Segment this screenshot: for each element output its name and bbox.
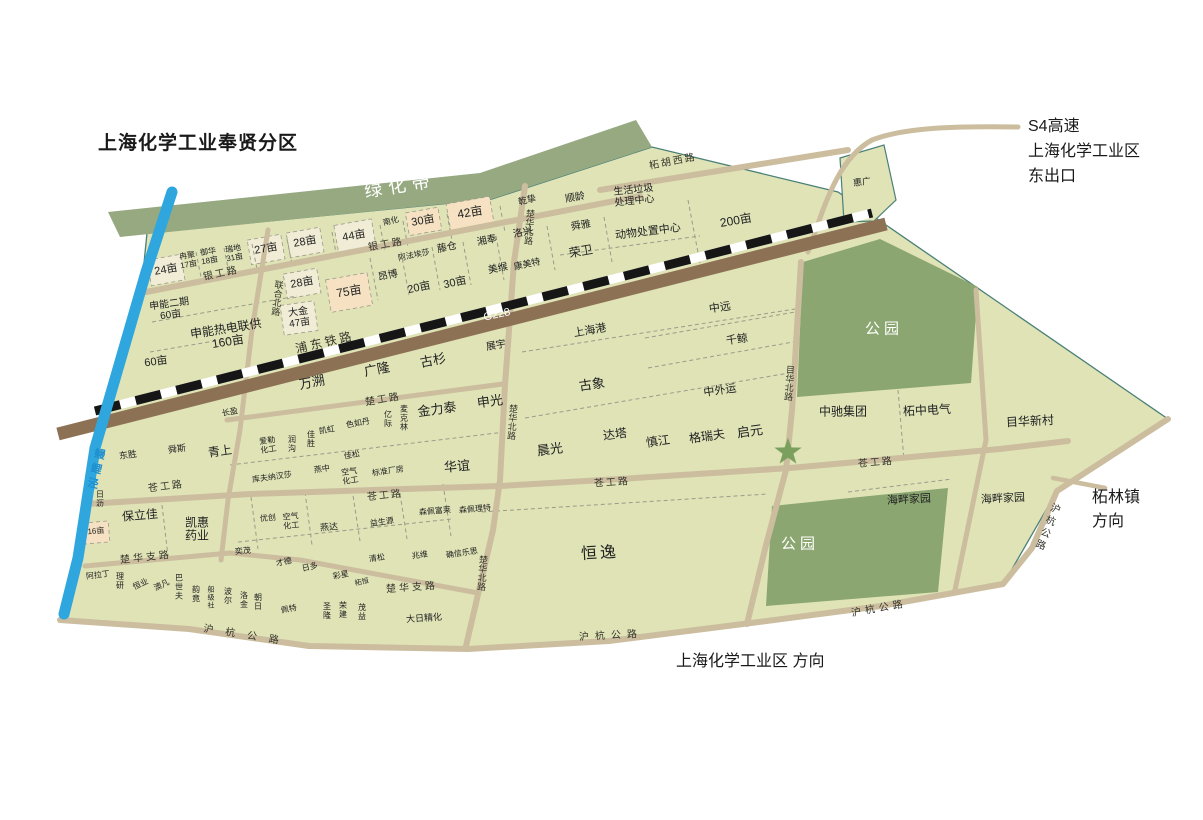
parcel-hengye: 恒业: [132, 578, 150, 593]
road-canggong-3: 苍工路: [594, 476, 631, 490]
parcel-luojin: 洛 金: [240, 592, 248, 610]
parcel-maoyi: 茂 益: [358, 604, 366, 622]
parcel-changying: 长盈: [221, 407, 238, 419]
road-canggong-4: 苍工路: [858, 456, 895, 470]
parcel-rongwei: 荣卫: [568, 243, 594, 260]
road-zhehuxi: 柘胡西路: [648, 152, 697, 172]
parcel-shunya: 舜雅: [570, 219, 592, 233]
parcel-shenjiang: 慎江: [645, 434, 671, 451]
parcel-jiasong: 佳松: [343, 450, 360, 462]
parcel-haipan-2: 海畔家园: [981, 492, 1026, 507]
parcel-caide: 才德: [275, 557, 293, 569]
parcel-rungou: 润 沟: [288, 436, 296, 454]
parcel-caixing: 彩星: [332, 570, 350, 582]
parcel-42mu: 42亩: [456, 204, 483, 222]
parcel-28mu-b: 28亩: [289, 275, 314, 291]
parcel-gushan: 古杉: [419, 351, 447, 370]
parcel-nanhua: 南化: [382, 216, 400, 229]
parcel-kongqi-2: 空气 化工: [282, 512, 299, 531]
parcel-chenguang: 晨光: [536, 441, 564, 459]
parcel-qianzhi: 乾挚: [517, 193, 537, 207]
parcel-60mu: 60亩: [144, 354, 169, 369]
parcel-75mu: 75亩: [335, 283, 362, 301]
parcel-zhaowei: 兆维: [411, 550, 428, 561]
road-chugong: 楚工路: [364, 391, 401, 408]
parcel-muhuaxincun: 目华新村: [1006, 414, 1055, 430]
facility-animal-center: 动物处置中心: [614, 222, 681, 242]
road-canggong-2: 苍工路: [367, 489, 404, 504]
parcel-guanglong: 广隆: [363, 360, 391, 379]
parcel-yanda: 燕达: [320, 521, 339, 533]
parcel-guxiang: 古象: [578, 376, 606, 394]
parcel-30mu-a: 30亩: [410, 213, 435, 229]
parcel-boer: 波 尔: [224, 588, 232, 606]
park-label-1: 公园: [865, 322, 903, 339]
parcel-kaihong: 凯虹: [318, 425, 335, 437]
road-chuhuabei-m: 楚华北路: [506, 404, 519, 441]
parcel-24mu: 24亩: [153, 262, 178, 278]
parcel-angbo: 昂博: [377, 268, 399, 283]
parcel-ranju-17mu: 冉聚 17亩: [178, 251, 198, 272]
parcel-28mu-a: 28亩: [292, 234, 317, 250]
road-yingong-b: 银工路: [367, 236, 404, 253]
road-canggong-1: 苍工路: [147, 479, 184, 494]
parcel-ailehuagong: 爱勒 化工: [259, 436, 277, 456]
parcel-bashifu: 巴 世 夫: [175, 575, 183, 602]
parcel-darijinghua: 大日精化: [406, 612, 443, 625]
parcel-kaihui: 凯惠 药业: [185, 517, 209, 544]
parcel-yuhua-18mu: 御华 18亩: [199, 247, 219, 268]
parcel-quexinlesi: 确信乐思: [446, 547, 479, 560]
parcel-dongsheng: 东胜: [118, 449, 137, 461]
parcel-jinlitai: 金力泰: [417, 400, 458, 420]
parcel-huiguang: 惠广: [852, 176, 871, 188]
parcel-baolijia: 保立佳: [121, 508, 158, 525]
parcel-30mu-b: 30亩: [442, 275, 467, 292]
parcel-shenneng2-60mu: 申能二期 60亩: [149, 296, 192, 324]
parcel-zhongchi: 中驰集团: [819, 405, 867, 418]
parcel-jiasheng: 佳 胜: [307, 431, 315, 449]
zhelin-direction-note: 柘林镇 方向: [1092, 486, 1140, 534]
parcel-xiangfeng: 湘奉: [476, 233, 498, 248]
parcel-wansu: 万溯: [298, 373, 326, 392]
parcel-tengcang: 藤仓: [436, 240, 458, 255]
parcel-biaozhun: 标准厂房: [372, 465, 405, 478]
parcel-yunjing: 韵 竟: [192, 586, 200, 604]
road-chuhuabei-s: 楚华北路: [476, 555, 489, 592]
parcel-rili: 日 沥: [96, 491, 104, 509]
parcel-afaaisha: 阿法埃莎: [397, 248, 430, 263]
parcel-peite: 佩特: [280, 604, 297, 616]
parcel-aladin: 阿拉丁: [85, 570, 110, 582]
road-huhang-2: 沪杭公路: [579, 629, 643, 644]
parcel-meigou: 美缑: [487, 261, 509, 276]
parcel-yimao: 奕茂: [235, 547, 252, 557]
parcel-zhongwaiyun: 中外运: [703, 383, 737, 400]
parcel-qiyuan: 启元: [736, 423, 764, 441]
road-chuhuazhi-2: 楚华支路: [386, 581, 439, 596]
parcel-liyan: 理 研: [116, 573, 124, 591]
parcel-shenglong: 圣 隆: [323, 603, 331, 621]
parcel-kufuna: 库夫纳汉莎: [252, 471, 293, 485]
map-label-layer: 绿化带24亩冉聚 17亩御华 18亩瑞地 31亩27亩28亩44亩南化30亩42…: [0, 0, 1203, 820]
green-belt-label: 绿化带: [363, 170, 437, 201]
road-muhuabei-n: 目华北路: [783, 365, 796, 402]
parcel-shunling: 顺龄: [564, 191, 586, 205]
road-huhang-1: 沪杭公路: [203, 624, 292, 649]
parcel-rongjian: 荣 建: [339, 602, 347, 620]
parcel-senpeifulai: 森佩富莱: [419, 506, 452, 518]
parcel-16mu: 16亩: [87, 527, 105, 537]
road-yingong-a: 银工路: [202, 265, 240, 283]
parcel-200mu: 200亩: [719, 212, 753, 231]
parcel-hengyi: 恒逸: [581, 544, 620, 564]
parcel-huayi: 华谊: [443, 459, 470, 476]
parcel-data: 达塔: [602, 427, 628, 444]
s4-exit-note: S4高速 上海化学工业区 东出口: [1028, 114, 1140, 189]
parcel-qianjing: 千鲸: [725, 332, 748, 347]
parcel-shunsi: 舜斯: [167, 443, 186, 455]
road-lianhebei: 联合北路: [270, 280, 284, 317]
parcel-zhongyuan: 中远: [708, 300, 731, 315]
parcel-youchuang: 优创: [260, 514, 277, 524]
parcel-shenguang: 申光: [476, 393, 504, 411]
parcel-serudan: 色如丹: [345, 418, 370, 431]
map-title: 上海化学工业奉贤分区: [98, 128, 298, 155]
parcel-shenneng-160mu: 申能热电联供 160亩: [189, 317, 264, 355]
parcel-senpeilite: 森佩理特: [459, 504, 492, 516]
parcel-kangmeite: 康美特: [513, 256, 542, 271]
parcel-zhanyu: 展宇: [485, 339, 507, 353]
park-label-2: 公园: [781, 537, 819, 554]
parcel-qingsong: 清松: [368, 553, 385, 564]
facility-waste-center: 生活垃圾 处理中心: [613, 183, 655, 209]
parcel-zhaori: 朝 日: [254, 594, 262, 612]
parcel-kongqi-1: 空气 化工: [341, 467, 359, 487]
parcel-zhezhong: 柘中电气: [903, 403, 952, 419]
river-manliji-label: 鳗鲤泾: [84, 447, 106, 494]
parcel-yiji: 亿 际: [384, 411, 392, 429]
road-chuhuazhi-1: 楚华支路: [120, 550, 173, 567]
parcel-dajin-47mu: 大金 47亩: [287, 305, 311, 330]
parcel-ruidi-31mu: 瑞地 31亩: [224, 244, 244, 265]
parcel-zheheng: 柘恒: [354, 578, 369, 589]
parcel-yanzhong: 燕中: [313, 464, 330, 475]
parcel-chuanjishe: 船 级 社: [208, 586, 215, 609]
parcel-20mu: 20亩: [406, 280, 431, 297]
parcel-yishengyuan: 益生源: [369, 517, 394, 529]
parcel-qingshang: 青上: [207, 444, 233, 461]
parcel-maikelin: 麦 克 林: [400, 406, 408, 433]
road-huhang-4: 沪杭公路: [1031, 501, 1061, 553]
chemical-zone-direction-note: 上海化学工业区 方向: [676, 647, 824, 671]
parcel-27mu: 27亩: [253, 241, 278, 257]
parcel-geruifu: 格瑞夫: [688, 428, 726, 446]
parcel-shanghaigang: 上海港: [573, 322, 608, 340]
parcel-aofan: 澳凡: [153, 579, 171, 594]
road-huhang-3: 沪杭公路: [850, 599, 907, 620]
railway-pudong-label: 浦东铁路: [294, 330, 356, 357]
parcel-riduo: 日多: [301, 562, 319, 574]
map-page: 绿化带24亩冉聚 17亩御华 18亩瑞地 31亩27亩28亩44亩南化30亩42…: [0, 0, 1203, 820]
parcel-haipan-1: 海畔家园: [887, 493, 932, 508]
route-g228-label: G228: [483, 306, 512, 324]
parcel-44mu: 44亩: [341, 228, 366, 244]
